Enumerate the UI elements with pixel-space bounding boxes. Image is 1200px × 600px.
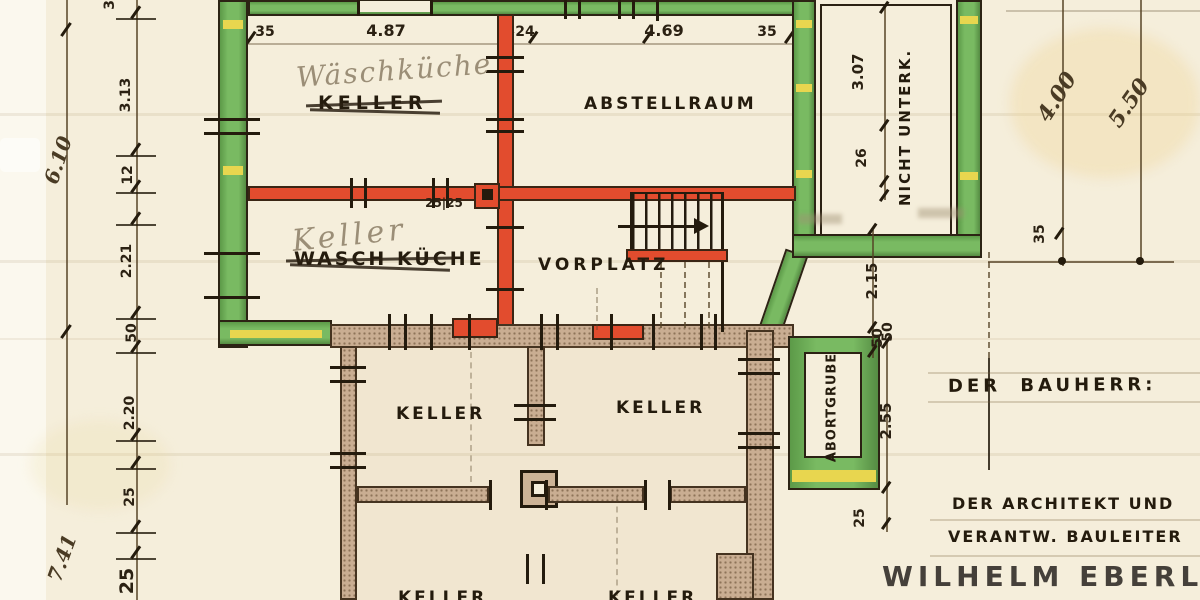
wall-tick	[644, 480, 647, 510]
guide-rule	[928, 401, 1200, 403]
architect-role-line1: DER ARCHITEKT UND	[952, 494, 1174, 513]
wall-tick	[578, 0, 581, 19]
wall-tick	[738, 372, 780, 375]
dim-label: 12	[120, 147, 136, 203]
stair-wall-line	[630, 192, 633, 254]
dim-label: 2.15	[863, 251, 881, 311]
wall-tick	[545, 480, 548, 510]
room-label-keller: KELLER	[616, 398, 705, 418]
wall-tick	[430, 314, 433, 350]
pencil-smudge	[918, 208, 964, 218]
wall-red-insert	[452, 318, 498, 338]
wall-tick	[350, 178, 353, 208]
wall-tick	[486, 288, 524, 291]
guide-rule	[928, 372, 1200, 374]
dim-label: 2.20	[122, 385, 138, 441]
fold-line-dashed	[988, 252, 990, 358]
wall-tick	[489, 480, 492, 510]
pencil-smudge	[798, 214, 842, 224]
wall-grey-left	[340, 346, 357, 600]
wall-tick	[618, 0, 621, 19]
wall-grey-cross	[548, 486, 644, 503]
wall-red-insert	[592, 324, 644, 340]
dim-label: 35	[1032, 208, 1048, 260]
floor-plan-sheet: 6.10 7.41 35 3.13 12 2.21 50 2.20 25 25 …	[0, 0, 1200, 600]
paper-margin	[0, 0, 46, 600]
wall-tick	[542, 554, 545, 584]
architect-name: WILHELM EBERLE	[882, 560, 1200, 593]
dim-label: 25|25	[424, 196, 464, 210]
room-label-vorplatz: VORPLATZ	[538, 255, 669, 275]
wall-tick	[540, 314, 543, 350]
room-label-keller: KELLER	[398, 588, 487, 600]
wall-tick	[204, 118, 260, 121]
wall-tick	[330, 366, 366, 369]
stair-direction-arrow	[618, 225, 698, 228]
wall-tick	[404, 314, 407, 350]
wall-grey-stub	[716, 553, 754, 600]
wall-tick	[738, 432, 780, 435]
stairs	[632, 192, 724, 252]
wall-tick	[632, 0, 635, 19]
wall-tick	[738, 446, 780, 449]
wall-tick	[738, 358, 780, 361]
dim-line	[988, 261, 1174, 263]
wall-tick	[330, 380, 366, 383]
room-label-keller: KELLER	[608, 588, 697, 600]
pencil-room-label: Wäschküche	[295, 47, 493, 94]
room-label-nicht-unterkellert: NICHT UNTERK.	[896, 56, 914, 206]
whiteout-patch	[0, 138, 40, 172]
wall-tick	[204, 132, 260, 135]
dim-line	[884, 6, 886, 200]
wall-tick	[388, 314, 391, 350]
window-sill	[960, 172, 978, 180]
center-line-dashed	[616, 496, 618, 596]
door-jamb	[357, 0, 360, 16]
room-label-abstellraum: ABSTELLRAUM	[584, 94, 757, 114]
wall-tick	[204, 252, 260, 255]
wall-grey-cross	[670, 486, 746, 503]
stair-wall-line	[721, 192, 724, 332]
arrow-head-icon	[694, 218, 709, 234]
dim-label: 25	[116, 553, 138, 600]
dim-label: 4.87	[352, 21, 420, 40]
dim-label: 35	[750, 24, 784, 40]
wall-grey-middle	[527, 346, 545, 446]
room-label-abortgrube: ABORTGRUBE	[825, 348, 840, 468]
column-core	[482, 189, 493, 200]
dim-line	[1006, 10, 1200, 12]
dim-label: 25	[122, 469, 138, 525]
window-sill	[796, 20, 812, 28]
wall-tick	[652, 314, 655, 350]
dim-label: 35	[248, 24, 282, 40]
dim-label: 50	[880, 310, 896, 354]
dim-label: 35	[102, 0, 118, 26]
dim-label: 3.07	[849, 42, 867, 102]
window-sill	[223, 20, 243, 29]
dim-tick	[116, 532, 156, 534]
door-jamb	[430, 0, 433, 16]
window-sill	[960, 16, 978, 24]
window-sill	[796, 84, 812, 92]
window-sill	[230, 330, 322, 338]
center-line-dashed	[596, 288, 598, 330]
window-sill	[223, 166, 243, 175]
pit-sill	[792, 470, 876, 482]
dim-node	[1058, 257, 1066, 265]
wall-tick	[656, 0, 659, 21]
wall-tick	[714, 314, 717, 350]
wall-tick	[330, 452, 366, 455]
guide-rule	[930, 519, 1200, 521]
dim-label: 50	[124, 305, 140, 361]
wall-red-vertical-upper	[497, 14, 514, 188]
dim-label: 26	[854, 136, 870, 180]
dim-label: 7.41	[40, 524, 84, 592]
door-opening	[360, 1, 432, 12]
wall-tick	[204, 296, 260, 299]
hidden-edge-dashed	[684, 262, 686, 328]
wall-red-vertical-lower	[497, 198, 514, 330]
guide-rule	[930, 555, 1200, 557]
dim-label: 2.55	[877, 389, 895, 453]
window-sill	[796, 170, 812, 178]
dim-line	[66, 0, 68, 505]
wall-tick	[364, 178, 367, 208]
hidden-edge-dashed	[708, 262, 710, 328]
wall-grey-cross	[357, 486, 489, 503]
annex-wall-bottom	[792, 234, 982, 258]
wall-tick	[700, 314, 703, 350]
wall-tick	[468, 314, 471, 350]
wall-tick	[556, 314, 559, 350]
wall-grey-band	[330, 324, 794, 348]
paper-stain	[30, 420, 170, 510]
dim-tick	[116, 224, 156, 226]
wall-tick	[486, 130, 524, 133]
wall-tick	[514, 418, 556, 421]
wall-tick	[330, 466, 366, 469]
client-heading: DER BAUHERR:	[948, 374, 1157, 397]
wall-tick	[610, 314, 613, 350]
dim-label: 2.21	[119, 233, 135, 289]
wall-tick	[526, 554, 529, 584]
dim-label: 3.13	[118, 67, 134, 123]
architect-role-line2: VERANTW. BAULEITER	[948, 527, 1183, 546]
dim-node	[1136, 257, 1144, 265]
wall-tick	[486, 118, 524, 121]
wall-tick	[486, 226, 524, 229]
wall-tick	[564, 0, 567, 19]
dim-tick	[116, 18, 156, 20]
wall-tick	[514, 404, 556, 407]
wall-green-top	[248, 0, 794, 16]
dim-line	[1140, 0, 1142, 264]
dim-label: 4.69	[630, 21, 698, 40]
dim-label: 25	[852, 494, 868, 542]
room-label-keller: KELLER	[396, 404, 485, 424]
wall-tick	[668, 480, 671, 510]
